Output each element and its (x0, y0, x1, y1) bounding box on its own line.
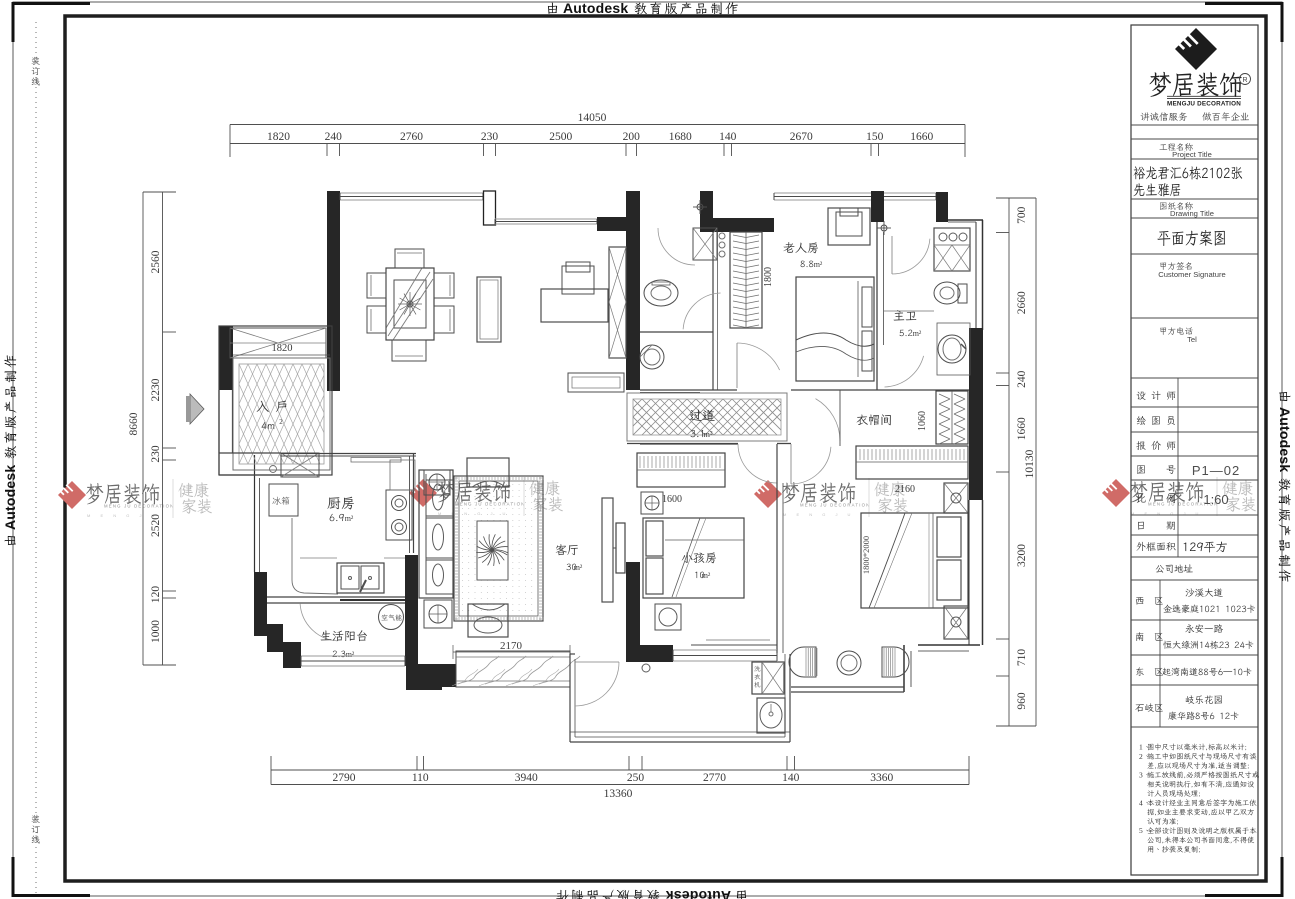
svg-text:2: 2 (1139, 752, 1143, 761)
svg-text:2160: 2160 (895, 484, 915, 495)
svg-text:2170: 2170 (500, 640, 523, 652)
svg-text:Customer Signature: Customer Signature (1158, 270, 1226, 279)
svg-text:14050: 14050 (578, 112, 607, 124)
svg-text:2: 2 (279, 418, 283, 426)
svg-text:240: 240 (1016, 370, 1028, 388)
svg-text:m²: m² (702, 571, 711, 580)
svg-text:710: 710 (1016, 649, 1028, 667)
svg-text:140: 140 (719, 131, 737, 143)
svg-text:2790: 2790 (333, 772, 356, 784)
svg-text:Drawing Title: Drawing Title (1170, 209, 1214, 218)
svg-text:m²: m² (913, 329, 922, 338)
svg-text:2500: 2500 (549, 131, 572, 143)
svg-text:P1—02: P1—02 (1192, 463, 1240, 478)
svg-text:1660: 1660 (1016, 417, 1028, 440)
svg-text:3: 3 (1139, 770, 1143, 779)
svg-text:120: 120 (150, 586, 162, 604)
svg-text:110: 110 (412, 772, 429, 784)
svg-text:3200: 3200 (1016, 544, 1028, 567)
svg-text:1680: 1680 (669, 131, 692, 143)
svg-text:8660: 8660 (128, 412, 140, 435)
svg-text:R: R (1242, 77, 1247, 84)
svg-text:1600: 1600 (662, 494, 682, 505)
svg-text:m²: m² (703, 429, 713, 439)
svg-text:4: 4 (1139, 798, 1143, 807)
svg-text:1800: 1800 (763, 267, 774, 287)
svg-text:3940: 3940 (515, 772, 538, 784)
svg-text:13360: 13360 (604, 788, 633, 800)
svg-text:2770: 2770 (703, 772, 726, 784)
svg-text:700: 700 (1016, 206, 1028, 224)
svg-text:Tel: Tel (1187, 335, 1197, 344)
svg-text:2560: 2560 (150, 250, 162, 273)
svg-text:1800*2000: 1800*2000 (861, 536, 871, 574)
svg-text:1:60: 1:60 (1203, 492, 1228, 507)
svg-text:m²: m² (814, 260, 823, 269)
svg-text:230: 230 (481, 131, 499, 143)
svg-text:150: 150 (866, 131, 884, 143)
svg-text:240: 240 (325, 131, 343, 143)
svg-text:1660: 1660 (910, 131, 933, 143)
svg-text:2670: 2670 (790, 131, 813, 143)
svg-text:10130: 10130 (1024, 449, 1036, 478)
svg-text:1: 1 (1139, 743, 1143, 752)
svg-text:MENGJU DECORATION: MENGJU DECORATION (1167, 101, 1241, 108)
svg-text:1000: 1000 (150, 620, 162, 643)
svg-text:250: 250 (627, 772, 645, 784)
svg-text:m²: m² (574, 563, 583, 572)
svg-text:140: 140 (782, 772, 800, 784)
svg-text:3360: 3360 (870, 772, 893, 784)
svg-text:m²: m² (346, 650, 355, 659)
svg-text:2230: 2230 (150, 378, 162, 401)
svg-text:Project Title: Project Title (1172, 150, 1212, 159)
svg-text:200: 200 (623, 131, 641, 143)
svg-text:1060: 1060 (917, 411, 928, 431)
svg-text:m²: m² (345, 514, 354, 523)
svg-text:1820: 1820 (267, 131, 290, 143)
svg-text:2660: 2660 (1016, 291, 1028, 314)
svg-text:230: 230 (150, 445, 162, 463)
svg-text:960: 960 (1016, 692, 1028, 710)
svg-text:2520: 2520 (150, 514, 162, 537)
svg-text:1820: 1820 (272, 343, 293, 354)
svg-text:2760: 2760 (400, 131, 423, 143)
svg-text:5: 5 (1139, 826, 1143, 835)
